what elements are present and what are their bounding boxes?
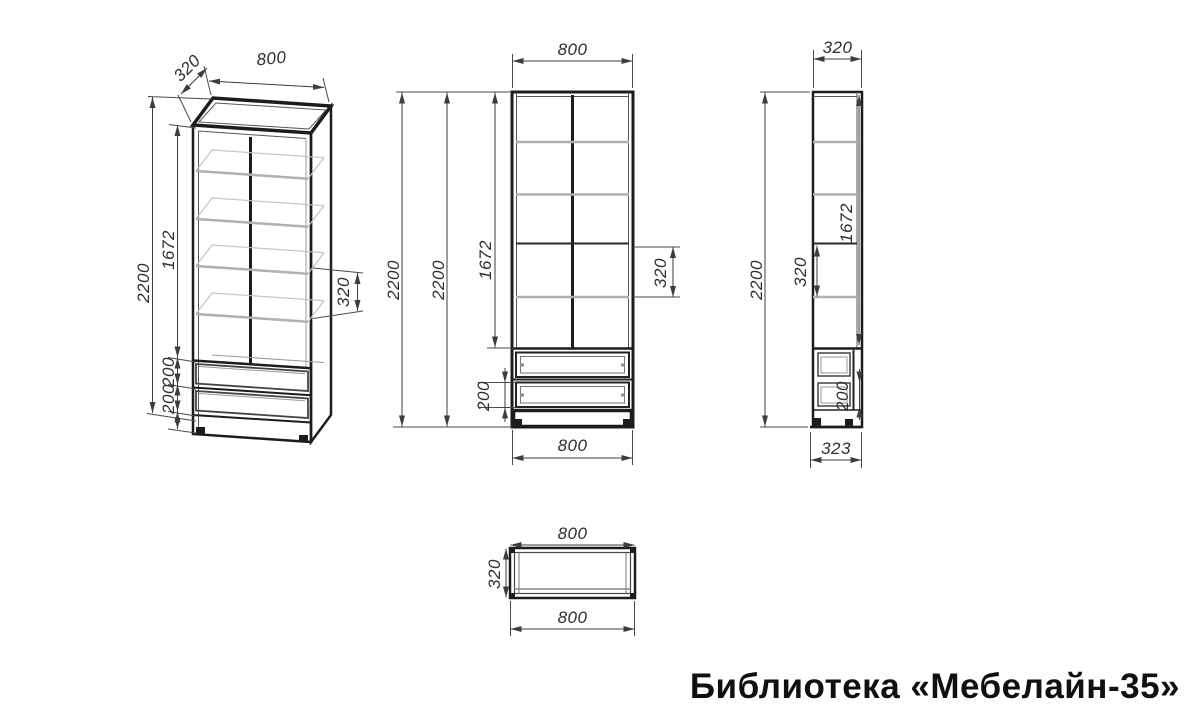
- dim-side-shelf-section: 1672: [837, 203, 856, 243]
- dim-iso-shelf-gap: 320: [334, 277, 353, 307]
- front-dimensions: 800 2200 2200 1672 200 320 800: [384, 40, 680, 465]
- iso-drawers: [193, 355, 324, 442]
- dim-front-width: 800: [558, 40, 588, 59]
- side-cabinet: [810, 92, 862, 427]
- top-cabinet: [510, 548, 635, 598]
- dim-front-drawer: 200: [474, 381, 493, 412]
- iso-view: 2200 1672 200 200 320 800 320: [134, 48, 363, 442]
- dim-side-drawer: 200: [833, 381, 852, 412]
- dim-side-depth: 320: [823, 38, 853, 57]
- dim-top-width: 800: [558, 524, 588, 543]
- technical-drawing: 2200 1672 200 200 320 800 320: [0, 0, 1200, 723]
- dim-iso-depth: 320: [170, 51, 205, 86]
- dim-top-depth: 320: [485, 559, 504, 589]
- dim-side-shelf-gap: 320: [791, 257, 810, 287]
- dim-front-height-inner: 2200: [429, 260, 448, 301]
- dim-front-shelf-gap: 320: [651, 258, 670, 288]
- dim-front-height-outer: 2200: [384, 260, 403, 301]
- dim-iso-shelf-section: 1672: [159, 230, 178, 270]
- dim-iso-height: 2200: [134, 263, 153, 304]
- dim-side-height: 2200: [747, 260, 766, 301]
- dim-top-width-bottom: 800: [558, 608, 588, 627]
- top-dimensions: 800 320 800: [485, 524, 635, 636]
- blueprint-canvas: 2200 1672 200 200 320 800 320: [0, 0, 1200, 723]
- dim-side-depth-bottom: 323: [821, 439, 851, 458]
- dim-front-shelf-section: 1672: [476, 240, 495, 280]
- side-view: 320 2200 320 1672 200 323: [747, 38, 862, 468]
- dim-iso-width: 800: [256, 48, 288, 70]
- dim-front-width-bottom: 800: [558, 436, 588, 455]
- front-view: 800 2200 2200 1672 200 320 800: [384, 40, 680, 465]
- top-view: 800 320 800: [485, 524, 635, 636]
- front-cabinet: [512, 92, 633, 427]
- drawing-title: Библиотека «Мебелайн-35»: [640, 667, 1180, 707]
- dim-iso-drawer-bottom: 200: [159, 384, 178, 415]
- iso-shelves: [196, 150, 324, 322]
- dim-iso-drawer-top: 200: [159, 357, 178, 388]
- side-dimensions: 320 2200 320 1672 200 323: [747, 38, 862, 468]
- iso-cabinet: [193, 98, 331, 442]
